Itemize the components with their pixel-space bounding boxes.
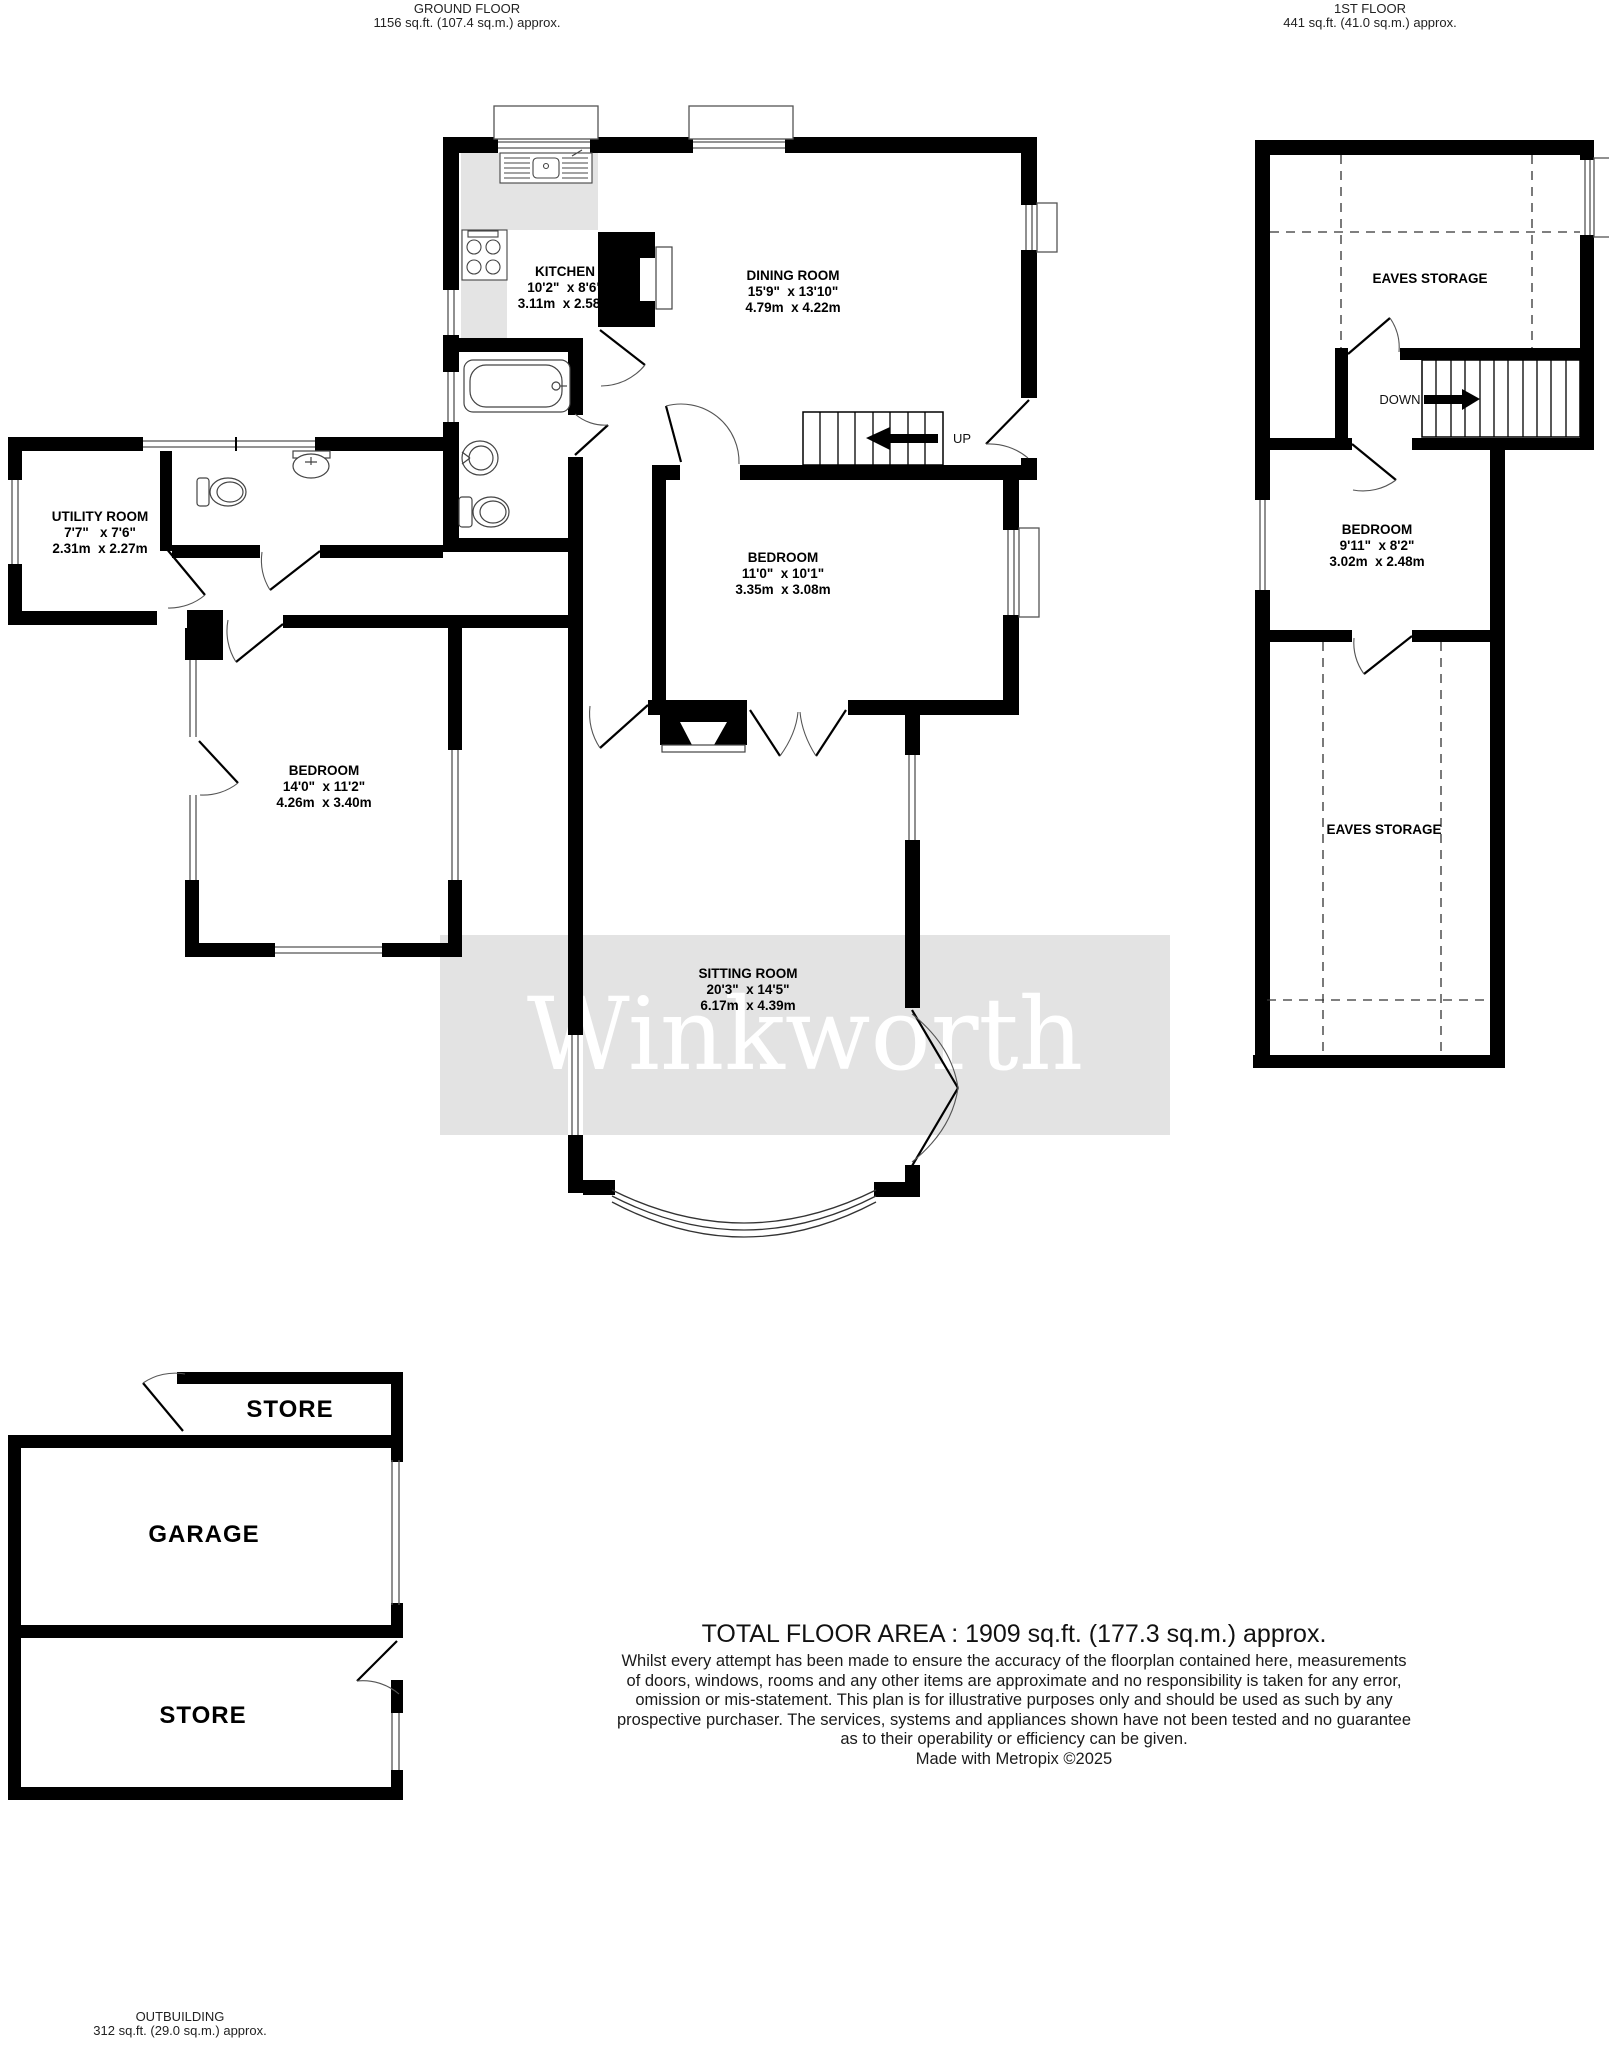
room-label-eaves-storage-bottom: EAVES STORAGE — [1326, 822, 1441, 838]
first-floor-header: 1ST FLOOR 441 sq.ft. (41.0 sq.m.) approx… — [1283, 2, 1456, 30]
first-floor-doors — [1348, 318, 1412, 674]
outbuilding-plan — [8, 1372, 403, 1800]
room-label-dining-room: DINING ROOM 15'9" x 13'10" 4.79m x 4.22m — [745, 268, 840, 316]
room-label-store-bottom: STORE — [159, 1708, 246, 1724]
room-label-eaves-storage-top: EAVES STORAGE — [1372, 271, 1487, 287]
room-label-utility-room: UTILITY ROOM 7'7" x 7'6" 2.31m x 2.27m — [52, 509, 149, 557]
ground-floor-header: GROUND FLOOR 1156 sq.ft. (107.4 sq.m.) a… — [374, 2, 561, 30]
ground-floor-area: 1156 sq.ft. (107.4 sq.m.) approx. — [374, 16, 561, 30]
first-floor-title: 1ST FLOOR — [1283, 2, 1456, 16]
hob-icon — [462, 230, 507, 280]
first-floor-door-arcs — [1353, 318, 1399, 674]
room-label-bedroom-left: BEDROOM 14'0" x 11'2" 4.26m x 3.40m — [276, 763, 371, 811]
stairs-up-label: UP — [953, 431, 971, 447]
bathroom-basin-icon — [462, 441, 498, 475]
kitchen-sink-icon — [500, 150, 592, 183]
room-label-bedroom-first: BEDROOM 9'11" x 8'2" 3.02m x 2.48m — [1329, 522, 1424, 570]
disclaimer-text: Whilst every attempt has been made to en… — [617, 1652, 1411, 1769]
bathroom-toilet-icon — [459, 497, 509, 527]
outbuilding-area: 312 sq.ft. (29.0 sq.m.) approx. — [93, 2024, 266, 2038]
ground-floor-title: GROUND FLOOR — [374, 2, 561, 16]
bay-window — [612, 1190, 876, 1237]
fireplace-hearth — [656, 247, 745, 752]
room-label-sitting-room: SITTING ROOM 20'3" x 14'5" 6.17m x 4.39m — [699, 966, 798, 1014]
room-label-garage: GARAGE — [148, 1527, 259, 1543]
outbuilding-walls — [8, 1372, 403, 1800]
bath-icon — [464, 360, 570, 412]
room-label-kitchen: KITCHEN 10'2" x 8'6" 3.11m x 2.58m — [518, 264, 613, 312]
wc-toilet-icon — [197, 478, 246, 506]
staircase-ground — [803, 412, 943, 465]
staircase-first — [1422, 360, 1580, 437]
stairs-down-label: DOWN — [1379, 392, 1420, 408]
eaves-dashed-lines — [1267, 155, 1580, 1055]
outbuilding-title: OUTBUILDING — [93, 2010, 266, 2024]
room-label-store-top: STORE — [246, 1402, 333, 1418]
room-label-bedroom-middle: BEDROOM 11'0" x 10'1" 3.35m x 3.08m — [735, 550, 830, 598]
floorplan-page: Winkworth — [0, 0, 1609, 2048]
first-floor-area: 441 sq.ft. (41.0 sq.m.) approx. — [1283, 16, 1456, 30]
wc-basin-icon — [293, 451, 330, 478]
outbuilding-header: OUTBUILDING 312 sq.ft. (29.0 sq.m.) appr… — [93, 2010, 266, 2038]
total-floor-area: TOTAL FLOOR AREA : 1909 sq.ft. (177.3 sq… — [702, 1620, 1327, 1649]
